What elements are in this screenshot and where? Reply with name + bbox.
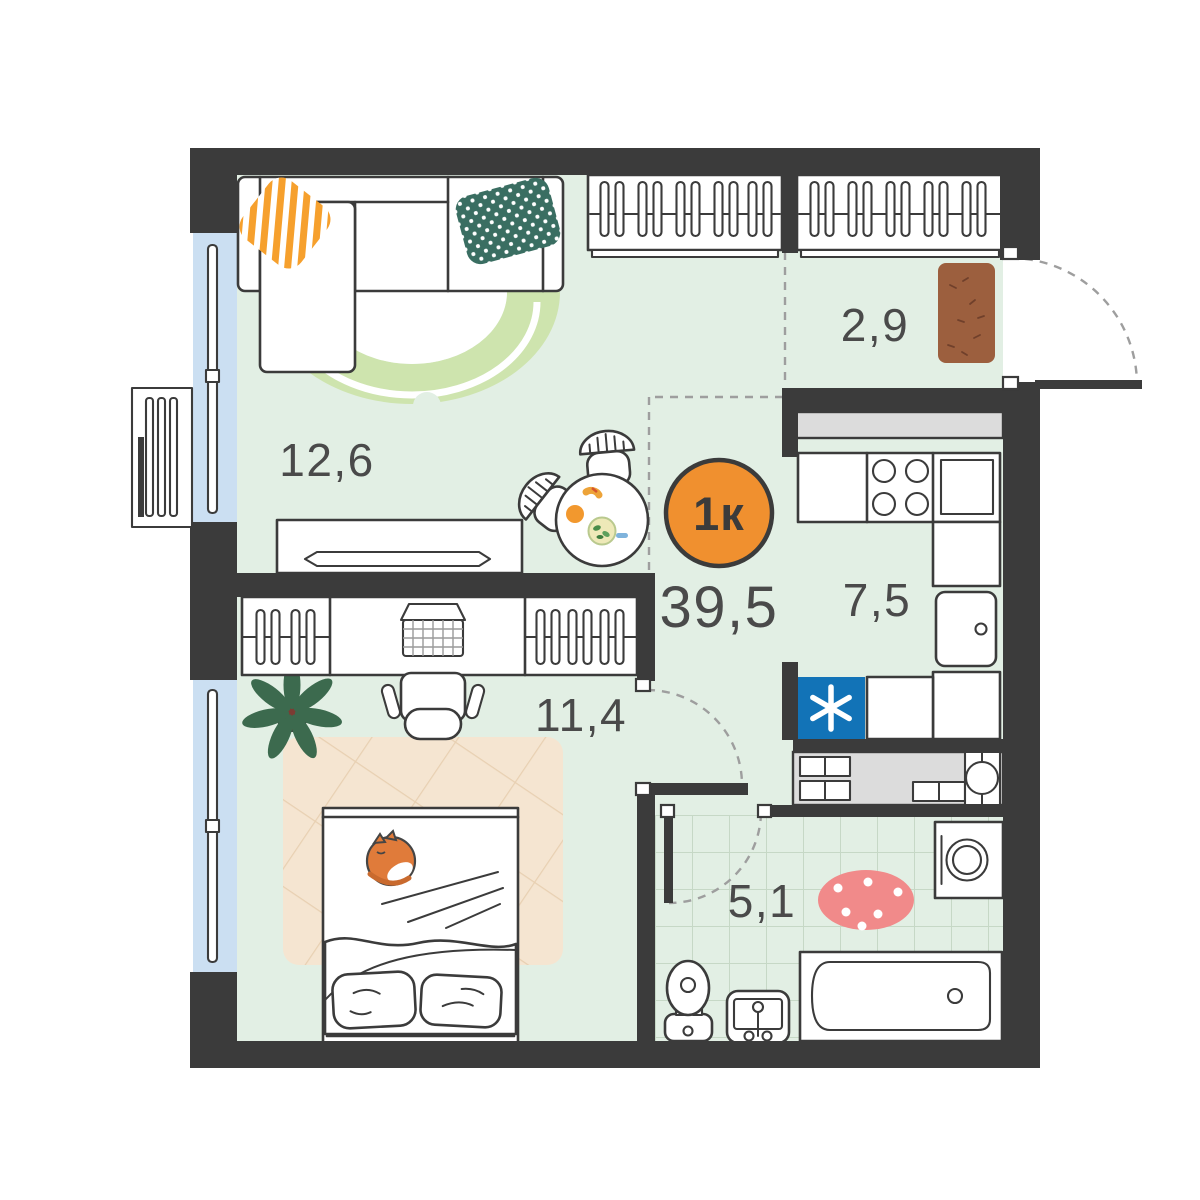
kitchen-shelf bbox=[795, 412, 1003, 438]
kitchen-counter bbox=[798, 453, 1000, 522]
pillow bbox=[420, 974, 503, 1028]
floor-plan-page: 12,6 11,4 2,9 7,5 5,1 39,5 1к bbox=[0, 0, 1200, 1200]
pillow bbox=[332, 971, 417, 1029]
counter-cabinet bbox=[933, 522, 1000, 586]
oven bbox=[936, 592, 996, 666]
bathtub bbox=[800, 952, 1002, 1041]
laptop bbox=[401, 604, 465, 656]
kitchen-sink bbox=[941, 460, 993, 514]
entrance-landing-wall bbox=[1035, 380, 1142, 389]
bathroom-area-label: 5,1 bbox=[728, 875, 796, 927]
lower-counter bbox=[793, 752, 1003, 805]
tv-console bbox=[277, 520, 522, 573]
counter-cabinet bbox=[867, 677, 933, 739]
floor-plan: 12,6 11,4 2,9 7,5 5,1 39,5 1к bbox=[0, 0, 1200, 1200]
hallway-area-label: 2,9 bbox=[841, 299, 909, 351]
living-area-label: 12,6 bbox=[279, 434, 375, 486]
tv bbox=[305, 552, 490, 566]
refrigerator bbox=[797, 677, 865, 739]
desk-wardrobe-unit bbox=[242, 597, 637, 675]
toilet bbox=[665, 961, 712, 1041]
entrance-door-swing-arc bbox=[1010, 258, 1137, 385]
wardrobe bbox=[797, 175, 1003, 257]
doormat bbox=[938, 263, 995, 363]
kitchen-area-label: 7,5 bbox=[843, 574, 911, 626]
washing-machine bbox=[935, 822, 1003, 898]
bedroom-area-label: 11,4 bbox=[535, 689, 627, 741]
counter-sink bbox=[965, 752, 1000, 805]
apartment-type-badge: 1к bbox=[666, 460, 772, 566]
apartment-type-label: 1к bbox=[693, 487, 745, 540]
total-area-label: 39,5 bbox=[660, 575, 779, 640]
bathroom-door-panel bbox=[664, 815, 673, 903]
ac-unit bbox=[132, 388, 192, 527]
bed bbox=[323, 808, 518, 1043]
counter-cabinet bbox=[933, 672, 1000, 739]
sink-vanity bbox=[727, 991, 789, 1043]
wardrobe bbox=[588, 175, 782, 257]
